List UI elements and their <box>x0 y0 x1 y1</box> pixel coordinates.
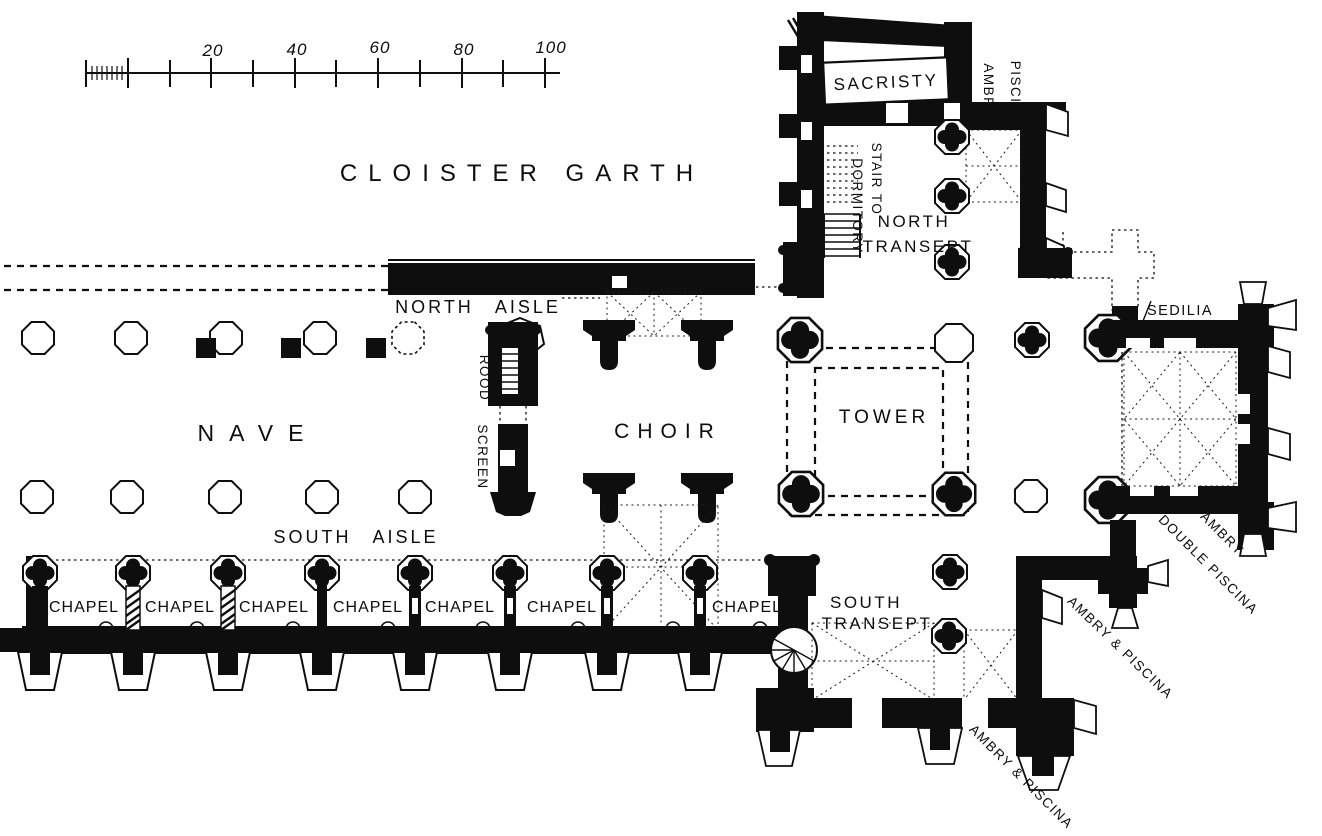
nave-north-arcade <box>22 322 424 358</box>
sedilia-label: SEDILIA <box>1147 303 1213 319</box>
chapel-label-1: CHAPEL <box>49 599 119 616</box>
nave-south-arcade <box>21 481 431 513</box>
chapel-buttresses <box>18 652 722 690</box>
cloister-garth-label: CLOISTER GARTH <box>340 160 704 187</box>
nave-label: NAVE <box>198 420 319 446</box>
south-transept-label-line1: SOUTH <box>830 593 902 612</box>
chapel-label-6: CHAPEL <box>527 599 597 616</box>
piscina-north-label: PISCINA <box>1008 61 1023 126</box>
north-transept-label-line2: TRANSEPT <box>863 237 974 256</box>
rood-label: ROOD <box>477 355 492 402</box>
south-aisle-label: SOUTH AISLE <box>273 527 438 547</box>
scale-label-40: 40 <box>287 40 308 59</box>
scale-label-60: 60 <box>370 38 391 57</box>
chapel-label-7: CHAPEL <box>712 599 782 616</box>
north-aisle-wall <box>388 242 821 298</box>
scale-bar-subdivisions <box>92 66 122 80</box>
chapel-row: CHAPEL CHAPEL CHAPEL CHAPEL CHAPEL CHAPE… <box>0 556 794 690</box>
chapel-pier-tops <box>23 556 717 590</box>
hatched-shaft-2 <box>221 586 235 630</box>
chapel-label-2: CHAPEL <box>145 599 215 616</box>
north-aisle-label: NORTH AISLE <box>395 297 561 317</box>
scale-bar: 20 40 60 80 100 <box>86 38 567 88</box>
north-transept-label-line1: NORTH <box>878 212 951 231</box>
hatched-shaft-1 <box>126 586 140 630</box>
south-transept-label-line2: TRANSEPT <box>822 614 933 633</box>
spiral-stair <box>771 627 817 673</box>
screen-label: SCREEN <box>475 424 490 489</box>
south-transept-vault <box>812 623 1018 700</box>
ambry-north-label: AMBRY <box>981 63 996 118</box>
chapel-label-3: CHAPEL <box>239 599 309 616</box>
scale-label-80: 80 <box>454 40 475 59</box>
floor-plan-drawing: 20 40 60 80 100 CLOISTER GARTH NORTH AIS… <box>0 0 1322 836</box>
chapel-label-5: CHAPEL <box>425 599 495 616</box>
scale-label-20: 20 <box>202 41 224 60</box>
stair-to-label: STAIR TO <box>869 143 884 216</box>
vault-north-transept <box>966 130 1022 202</box>
choir-label: CHOIR <box>614 420 722 443</box>
chapel-label-4: CHAPEL <box>333 599 403 616</box>
sanctuary-vault <box>1124 352 1236 486</box>
presbytery <box>1085 282 1296 562</box>
floor-plan-page: 20 40 60 80 100 CLOISTER GARTH NORTH AIS… <box>0 0 1322 836</box>
tower-label: TOWER <box>839 407 929 428</box>
rood-screen <box>485 318 544 516</box>
scale-label-100: 100 <box>535 38 566 57</box>
south-transept <box>756 554 1168 790</box>
